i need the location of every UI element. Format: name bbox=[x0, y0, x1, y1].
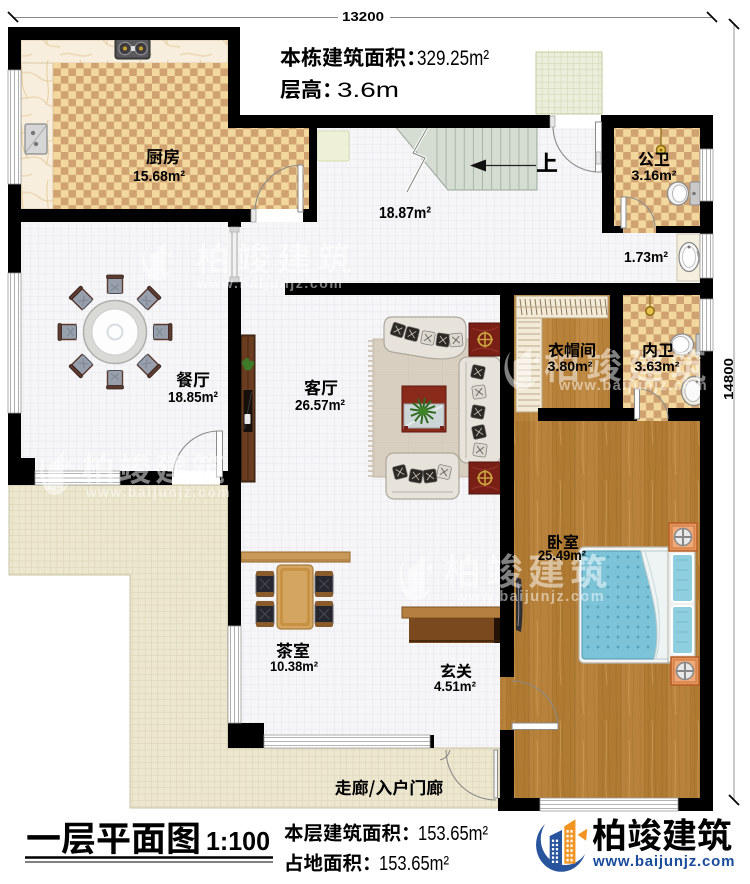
svg-text:18.87m²: 18.87m² bbox=[379, 205, 431, 222]
svg-text:3.6m: 3.6m bbox=[337, 79, 399, 102]
svg-text:14800: 14800 bbox=[722, 358, 736, 400]
svg-text:13200: 13200 bbox=[342, 10, 384, 24]
svg-text:10.38m²: 10.38m² bbox=[270, 658, 318, 674]
svg-text:25.49m²: 25.49m² bbox=[538, 547, 586, 563]
svg-text:www.baijunjz.com: www.baijunjz.com bbox=[85, 485, 231, 500]
svg-text:3.16m²: 3.16m² bbox=[632, 167, 677, 183]
svg-text:3.63m²: 3.63m² bbox=[635, 358, 680, 374]
svg-text:153.65m²: 153.65m² bbox=[418, 823, 488, 845]
svg-text:153.65m²: 153.65m² bbox=[379, 853, 449, 875]
svg-text:18.85m²: 18.85m² bbox=[168, 389, 218, 406]
svg-text:1.73m²: 1.73m² bbox=[624, 249, 668, 266]
svg-text:3.80m²: 3.80m² bbox=[548, 358, 593, 374]
svg-text:www.baijunjz.com: www.baijunjz.com bbox=[455, 589, 605, 605]
svg-text:26.57m²: 26.57m² bbox=[295, 397, 345, 414]
svg-text:www.baijunjz.com: www.baijunjz.com bbox=[558, 378, 708, 394]
svg-text:www.baijunjz.com: www.baijunjz.com bbox=[196, 275, 343, 291]
svg-text:www.baijunjz.com: www.baijunjz.com bbox=[592, 853, 735, 870]
svg-text:329.25m²: 329.25m² bbox=[417, 47, 489, 70]
svg-text:4.51m²: 4.51m² bbox=[434, 678, 476, 694]
svg-text:1:100: 1:100 bbox=[206, 826, 270, 856]
svg-text:15.68m²: 15.68m² bbox=[133, 168, 185, 185]
